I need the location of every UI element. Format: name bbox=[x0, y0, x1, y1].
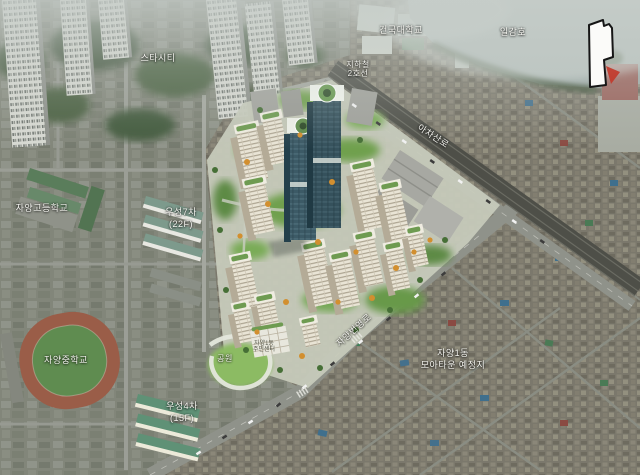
label-moatown-site: 자양1동 모아타운 예정지 bbox=[421, 347, 485, 371]
label-wooseong4: 우성4차 (15F) bbox=[166, 400, 198, 424]
label-ilgam-lake: 일감호 bbox=[500, 27, 526, 38]
label-rail-line-2: 2호선 bbox=[346, 69, 370, 78]
label-konkuk-university: 건국대학교 bbox=[379, 25, 423, 36]
label-star-city: 스타시티 bbox=[140, 53, 175, 64]
label-jayang-high-school: 자양고등학교 bbox=[16, 203, 69, 214]
label-rail-line: 지하철 2호선 bbox=[346, 60, 370, 78]
label-wooseong7-name: 우성7차 bbox=[165, 206, 197, 218]
aerial-photo bbox=[0, 0, 640, 475]
label-wooseong4-floors: (15F) bbox=[166, 412, 198, 424]
label-wooseong4-name: 우성4차 bbox=[166, 400, 198, 412]
label-civic-building: 자양1동 주민센터 bbox=[253, 341, 275, 353]
label-moatown-line1: 자양1동 bbox=[421, 347, 485, 359]
label-park: 공원 bbox=[217, 354, 233, 363]
label-wooseong7-floors: (22F) bbox=[165, 218, 197, 230]
label-moatown-line2: 모아타운 예정지 bbox=[421, 359, 485, 371]
label-jayang-middle-school: 자양중학교 bbox=[44, 355, 88, 366]
label-wooseong7: 우성7차 (22F) bbox=[165, 206, 197, 230]
label-civic-line2: 주민센터 bbox=[253, 347, 275, 353]
aerial-rendering-screenshot: 스타시티 건국대학교 일감호 지하철 2호선 아차산로 자양고등학교 우성7차 … bbox=[0, 0, 640, 475]
haze-overlay bbox=[0, 0, 640, 150]
label-rail-line-1: 지하철 bbox=[346, 60, 370, 69]
